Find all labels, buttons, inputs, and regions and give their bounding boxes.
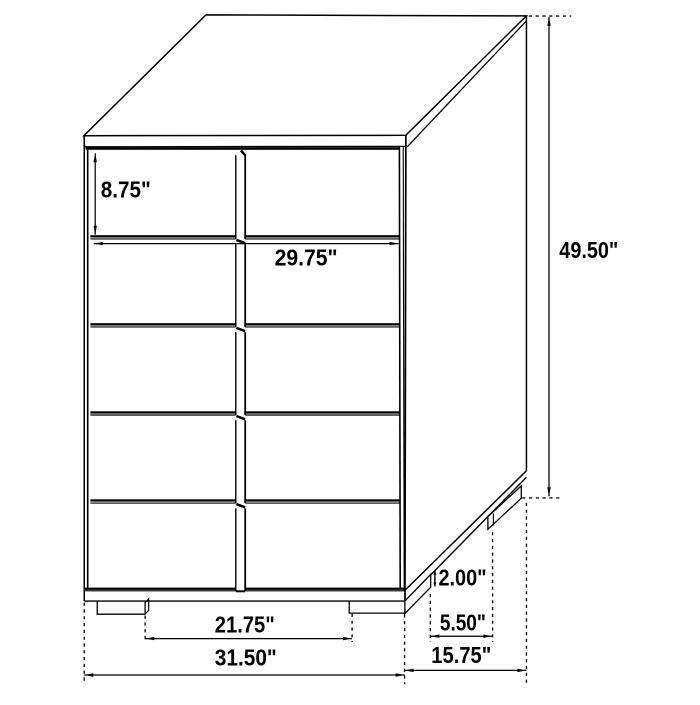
svg-text:15.75": 15.75" bbox=[431, 642, 491, 668]
svg-text:5.50": 5.50" bbox=[440, 609, 486, 635]
svg-text:29.75": 29.75" bbox=[275, 245, 338, 271]
svg-text:31.50": 31.50" bbox=[215, 644, 277, 670]
svg-text:49.50": 49.50" bbox=[559, 237, 618, 263]
svg-text:21.75": 21.75" bbox=[215, 611, 275, 637]
svg-text:8.75": 8.75" bbox=[101, 177, 151, 203]
svg-text:2.00": 2.00" bbox=[439, 564, 487, 590]
